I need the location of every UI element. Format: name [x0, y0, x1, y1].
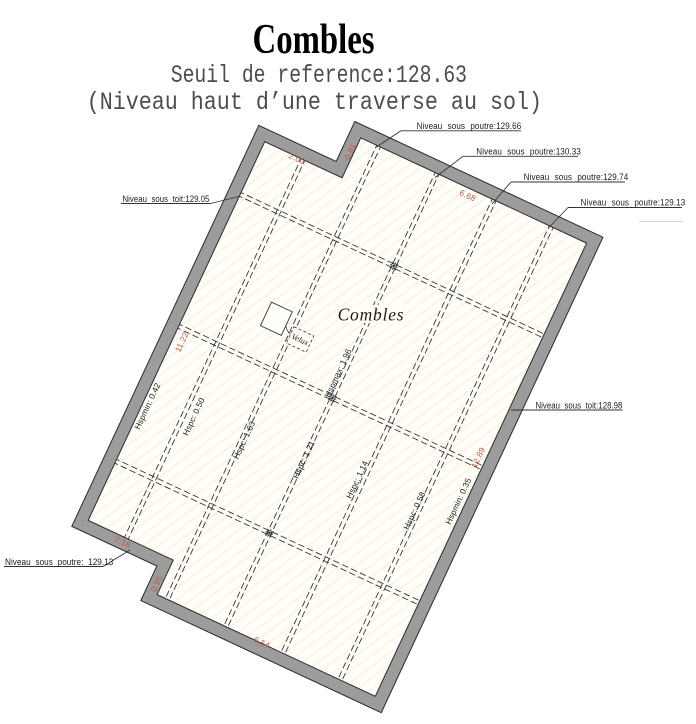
svg-text:Niveau sous poutre:129.74: Niveau sous poutre:129.74 [524, 172, 629, 183]
svg-text:Combles: Combles [338, 305, 405, 325]
svg-text:Niveau sous poutre:130.33: Niveau sous poutre:130.33 [476, 146, 581, 157]
svg-text:Niveau sous toit:129.05: Niveau sous toit:129.05 [123, 193, 210, 204]
svg-text:Niveau sous poutre:129.66: Niveau sous poutre:129.66 [417, 120, 522, 131]
svg-text:Niveau sous poutre:129.13: Niveau sous poutre:129.13 [581, 197, 686, 208]
svg-text:Niveau sous poutre: 129.13: Niveau sous poutre: 129.13 [5, 557, 114, 567]
svg-text:Niveau sous toit:128.98: Niveau sous toit:128.98 [536, 400, 623, 411]
